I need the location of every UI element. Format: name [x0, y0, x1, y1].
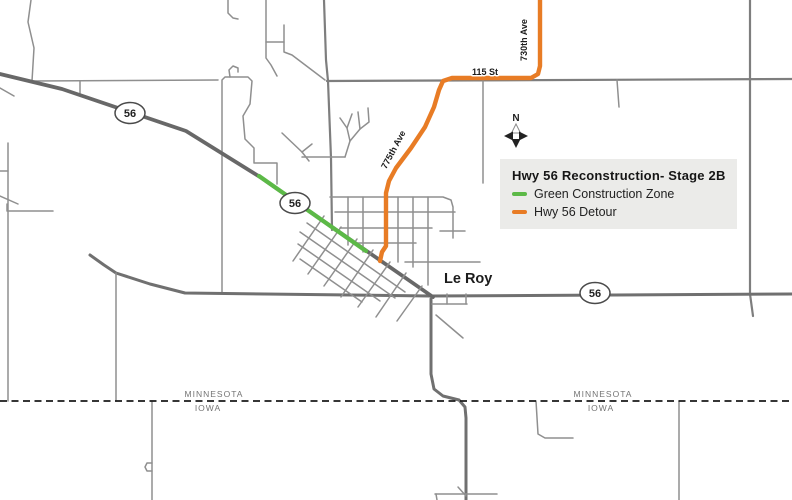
road-major [324, 0, 332, 230]
label-115-st: 115 St [472, 67, 498, 77]
road-trunk [431, 299, 466, 500]
legend-item-label: Green Construction Zone [534, 187, 674, 201]
state-label-iowa-right: IOWA [588, 403, 614, 413]
road-minor [33, 80, 218, 81]
road-minor [266, 0, 277, 76]
legend-item-detour: Hwy 56 Detour [512, 205, 725, 219]
road-minor [228, 0, 238, 19]
road-minor [340, 118, 347, 128]
state-label-minnesota-right: MINNESOTA [574, 389, 633, 399]
construction-zone-swatch-icon [512, 192, 527, 197]
road-minor [617, 80, 619, 107]
road-minor [307, 223, 405, 292]
roads-layer [0, 0, 792, 500]
state-label-minnesota-left: MINNESOTA [185, 389, 244, 399]
hwy-56-shield-northwest: 56 [115, 103, 145, 124]
road-trunk [90, 255, 792, 296]
road-minor [28, 0, 34, 81]
road-minor [436, 494, 437, 500]
hwy-56-shield-construction: 56 [280, 193, 310, 214]
road-major [327, 79, 792, 81]
legend-item-label: Hwy 56 Detour [534, 205, 617, 219]
map-page: MINNESOTA IOWA MINNESOTA IOWA 730th Ave … [0, 0, 792, 500]
road-minor [7, 204, 53, 211]
compass-north-label: N [512, 113, 519, 124]
road-minor [358, 262, 390, 307]
compass-arrow-south-icon [512, 139, 521, 148]
map-canvas: MINNESOTA IOWA MINNESOTA IOWA 730th Ave … [0, 0, 792, 500]
legend-title: Hwy 56 Reconstruction- Stage 2B [512, 168, 725, 183]
label-le-roy: Le Roy [444, 271, 492, 287]
hwy-56-shield-east: 56 [580, 283, 610, 304]
shield-number: 56 [124, 108, 136, 120]
road-minor [145, 463, 152, 471]
state-label-iowa-left: IOWA [195, 403, 221, 413]
road-minor [293, 216, 324, 261]
road-minor [436, 315, 463, 338]
road-minor [302, 144, 312, 152]
road-minor [308, 227, 341, 274]
label-775th-ave: 775th Ave [379, 129, 407, 171]
label-730th-ave: 730th Ave [519, 19, 529, 61]
legend: Hwy 56 Reconstruction- Stage 2B Green Co… [500, 159, 737, 229]
compass-rose: N [504, 113, 528, 148]
road-minor [229, 66, 238, 77]
legend-item-construction-zone: Green Construction Zone [512, 187, 725, 201]
road-minor [284, 25, 325, 80]
road-labels: 730th Ave 115 St 775th Ave Le Roy [379, 19, 529, 287]
road-minor [536, 401, 573, 438]
shield-number: 56 [589, 288, 601, 300]
road-minor [282, 133, 302, 152]
road-minor [345, 114, 352, 157]
road-minor [0, 88, 14, 96]
road-construction [259, 176, 366, 251]
shield-number: 56 [289, 198, 301, 210]
road-minor [0, 196, 18, 204]
detour-swatch-icon [512, 210, 527, 215]
road-minor [341, 250, 373, 297]
road-minor [397, 286, 422, 321]
road-minor [360, 108, 369, 129]
road-major [750, 0, 753, 316]
